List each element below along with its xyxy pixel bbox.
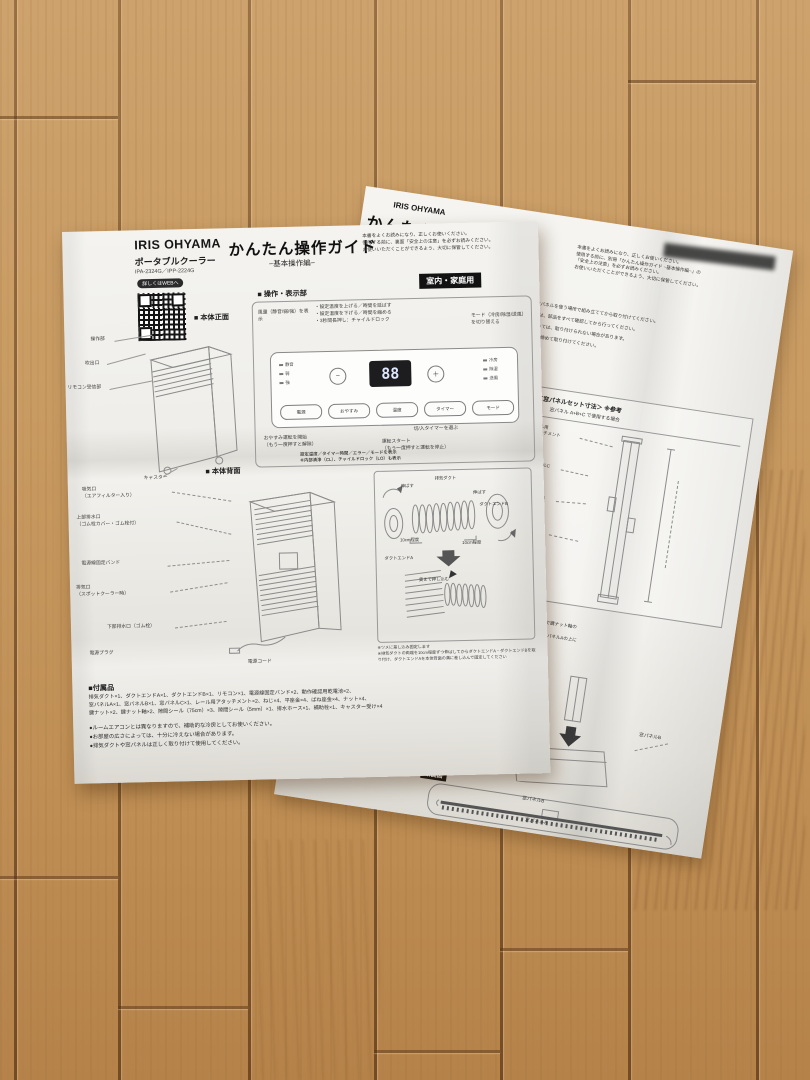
- outlet-label: 吹出口: [85, 361, 100, 368]
- push-in-label: 奥まで押し込む: [419, 576, 449, 582]
- model-numbers: IPA-2324G／IPP-2224G: [135, 266, 195, 275]
- lower-drain-label: 下部排水口（ゴム栓）: [107, 624, 155, 632]
- qr-position-marker: [171, 293, 184, 306]
- temp-buttons-annotation: ・設定温度を上げる／時間を延ばす ・設定温度を下げる／時間を縮める ・3秒間長押…: [315, 302, 467, 326]
- front-view-heading: ■ 本体正面: [194, 312, 229, 323]
- led-label: 静音: [279, 362, 294, 368]
- unit-front-view-drawing: [128, 324, 251, 477]
- floor-plank-joint: [500, 948, 628, 951]
- control-panel-drawing: 静音 弱 強 − 88 ＋ 冷房 除湿 送風 電源 おやすみ 温度 タイマー モ…: [270, 347, 520, 429]
- stretch-label: 伸ばす: [401, 483, 414, 489]
- led-label: 強: [279, 380, 294, 386]
- back-view-heading: ■ 本体背面: [205, 466, 240, 477]
- qr-caption-pill: 詳しくはWEBへ: [137, 278, 184, 288]
- duct-assembly-notes: ※ツメに差し込み固定します ※排気ダクトの両端を10cm程度ずつ伸ばしてからダク…: [377, 641, 537, 663]
- guide-subtitle: −基本操作編−: [269, 257, 316, 269]
- remote-sensor-label: リモコン受信部: [67, 385, 125, 393]
- panel-section-heading: ■ 操作・表示部: [257, 288, 307, 299]
- floor-plank-seam: [756, 0, 759, 1080]
- panel-label: 操作部: [90, 337, 105, 344]
- mode-annotation: モード（冷房/除湿/送風）を切り替える: [471, 312, 527, 327]
- floor-plank-joint: [0, 876, 118, 879]
- timer-annotation: 切/入タイマーを選ぶ: [414, 426, 459, 434]
- cord-band-label: 電源線固定バンド: [81, 560, 171, 569]
- duct-end-a-label: ダクトエンドA: [384, 555, 413, 561]
- window-panel-rail-drawing: [556, 426, 701, 616]
- photo-of-instruction-sheets: IRIS OHYAMA かんたん操作ガイド −組み立て・取り付け編− 本書をよく…: [0, 0, 810, 1080]
- basic-operation-guide-sheet: IRIS OHYAMA ポータブルクーラー IPA-2324G／IPP-2224…: [62, 221, 550, 784]
- display-annotation: 設定温度／タイマー時間／エラー／モードを表示 ※内部清浄（CL）、チャイルドロッ…: [300, 447, 500, 464]
- accessories-heading: ■付属品: [88, 683, 114, 694]
- sleep-annotation: おやすみ運転を開始 （もう一度押すと解除）: [264, 434, 372, 450]
- upper-drain-label: 上部排水口 （ゴム栓カバー・ゴム栓付）: [76, 513, 178, 529]
- minus-button-drawing: −: [329, 368, 346, 385]
- guide-title: かんたん操作ガイド: [228, 235, 377, 260]
- floor-plank-seam: [14, 0, 17, 1080]
- plus-button-drawing: ＋: [427, 365, 444, 382]
- led-label: 除湿: [483, 366, 498, 372]
- ten-cm-label: 10cm程度: [462, 540, 481, 546]
- power-button-drawing: 電源: [280, 404, 322, 420]
- led-label: 送風: [483, 375, 498, 381]
- floor-plank-joint: [374, 1050, 500, 1053]
- leader-line: [170, 582, 227, 592]
- accessories-list: 排気ダクト×1、ダクトエンドA×1、ダクトエンドB×1、リモコン×1、電源線固定…: [88, 683, 534, 717]
- fan-led-labels: 静音 弱 強: [279, 362, 294, 386]
- leader-line: [175, 621, 227, 629]
- led-label: 冷房: [483, 357, 498, 363]
- brand-logo: IRIS OHYAMA: [134, 236, 221, 252]
- indoor-household-badge: 室内・家庭用: [419, 273, 481, 289]
- led-label: 弱: [279, 371, 294, 377]
- mode-led-labels: 冷房 除湿 送風: [483, 357, 498, 381]
- floor-plank-joint: [118, 1006, 248, 1009]
- panel-diagram-box: ・設定温度を上げる／時間を延ばす ・設定温度を下げる／時間を縮める ・3秒間長押…: [252, 295, 536, 467]
- exhaust-duct-label: 排気ダクト: [435, 475, 457, 481]
- fan-annotation: 風量（静音/弱/強）を表示: [258, 309, 312, 324]
- floor-plank-joint: [0, 116, 118, 119]
- power-cord-label: 電源コード: [248, 659, 272, 666]
- ten-cm-label: 10cm程度: [400, 537, 419, 543]
- temp-button-drawing: 温度: [376, 402, 418, 418]
- sleep-button-drawing: おやすみ: [328, 403, 370, 419]
- intake-label: 吸気口 （エアフィルター入り）: [82, 486, 174, 502]
- qr-position-marker: [138, 294, 151, 307]
- duct-assembly-box: 伸ばす 排気ダクト 伸ばす ダクトエンドB 10cm程度 10cm程度 ダクトエ…: [374, 467, 536, 643]
- mode-button-drawing: モード: [472, 400, 514, 416]
- unit-back-view-drawing: [218, 478, 352, 656]
- floor-plank-joint: [628, 80, 756, 83]
- caster-label: キャスター: [144, 476, 168, 483]
- stretch-label: 伸ばす: [473, 489, 486, 495]
- exhaust-label: 排気口 （スポットクーラー時）: [76, 584, 172, 600]
- digital-display-drawing: 88: [369, 360, 412, 387]
- timer-button-drawing: タイマー: [424, 401, 466, 417]
- power-plug-label: 電源プラグ: [90, 651, 114, 658]
- duct-assembly-drawing: [375, 468, 535, 639]
- duct-end-b-label: ダクトエンドB: [479, 501, 527, 508]
- intro-text: 本書をよくお読みになり、正しくお使いください。 使用する前に、裏面「安全上の注意…: [362, 229, 526, 253]
